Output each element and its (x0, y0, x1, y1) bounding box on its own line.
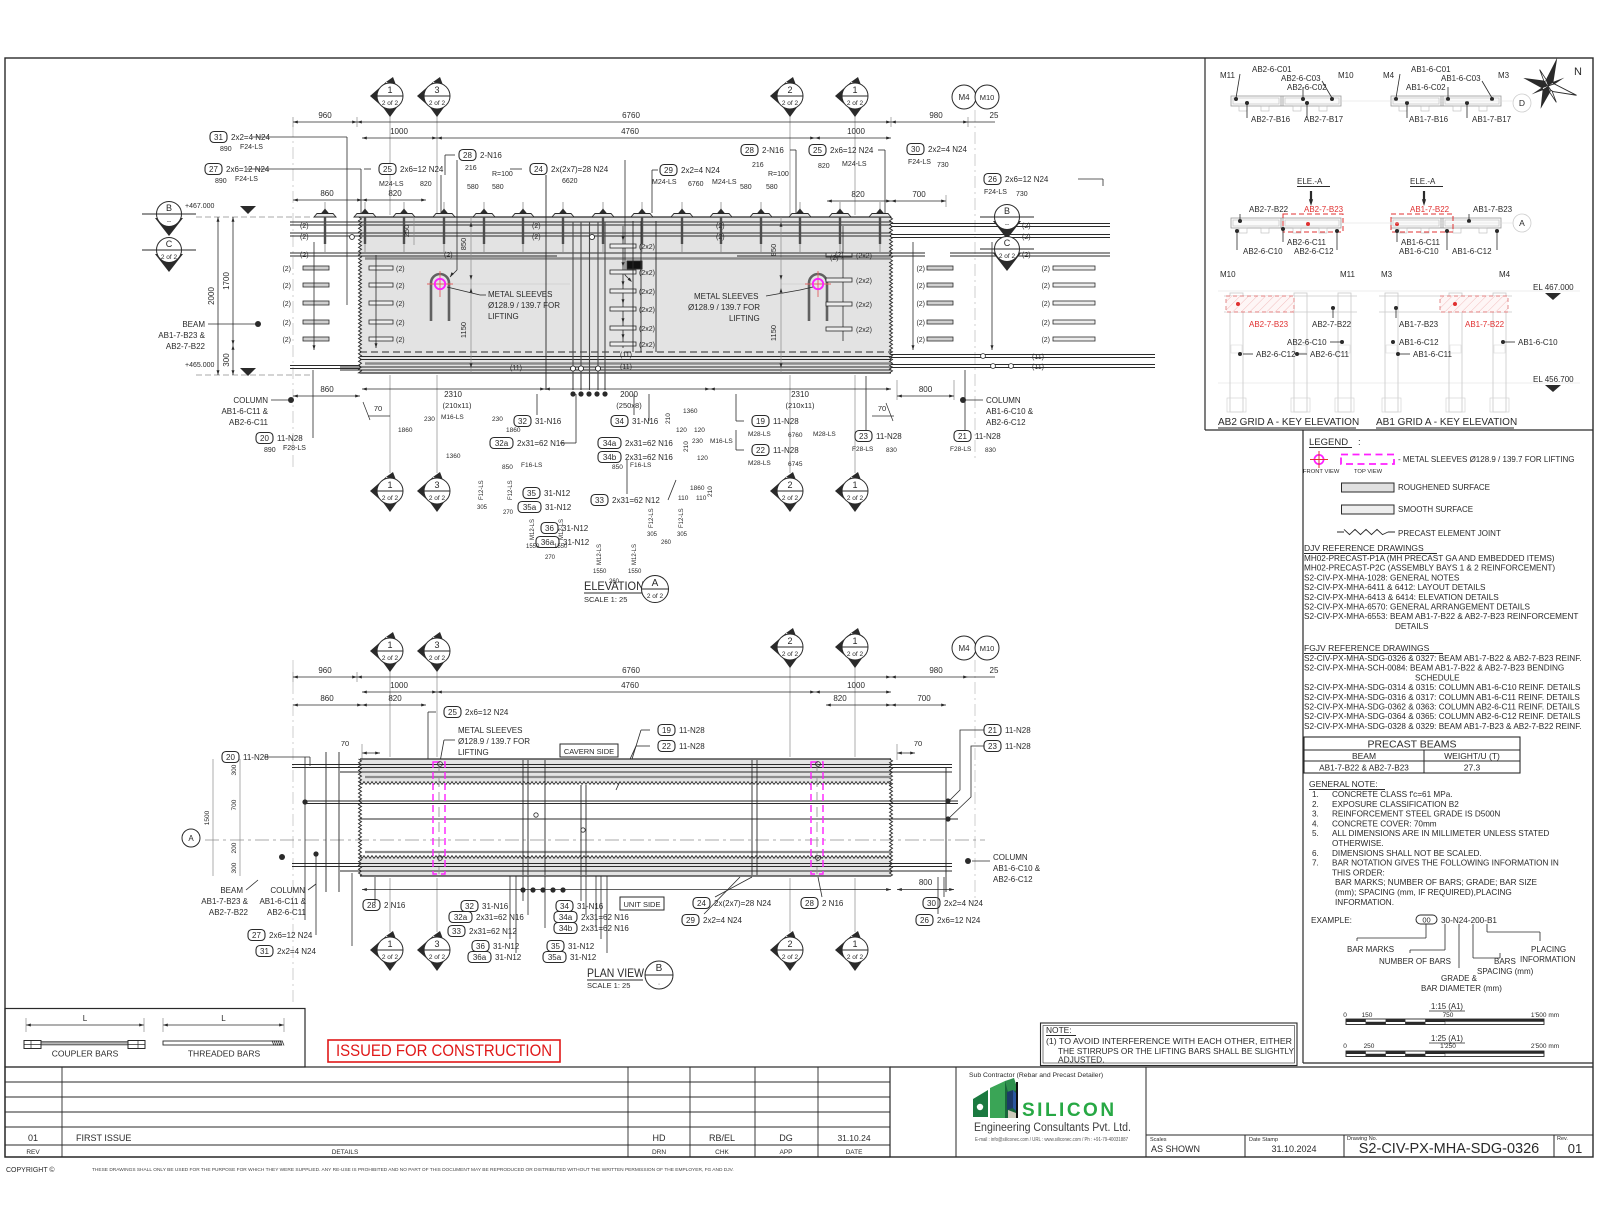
svg-text:AB2-6-C12: AB2-6-C12 (986, 418, 1026, 427)
svg-text:11-N28: 11-N28 (773, 446, 799, 455)
svg-text:PLACING: PLACING (1531, 945, 1566, 954)
svg-text:36a: 36a (541, 538, 555, 547)
svg-text:M24-LS: M24-LS (379, 181, 404, 188)
svg-text:·: · (658, 981, 660, 988)
svg-text:DETAILS: DETAILS (1395, 622, 1429, 631)
svg-text:580: 580 (467, 184, 479, 191)
svg-text:20: 20 (260, 434, 269, 443)
svg-text:230: 230 (692, 438, 703, 445)
svg-text:F28-LS: F28-LS (852, 446, 874, 453)
svg-text:BARS: BARS (1494, 957, 1516, 966)
svg-text:M12-LS: M12-LS (530, 519, 536, 540)
svg-text:2x2=4 N24: 2x2=4 N24 (231, 133, 270, 142)
svg-text:750: 750 (1443, 1012, 1454, 1019)
svg-text:1: 1 (852, 939, 857, 949)
svg-text:2 of 2: 2 of 2 (647, 593, 664, 600)
svg-text:34a: 34a (603, 439, 617, 448)
svg-text:(2): (2) (916, 301, 925, 308)
svg-text:2 of 2: 2 of 2 (382, 495, 399, 502)
svg-text:700: 700 (231, 799, 238, 810)
svg-text:2 N16: 2 N16 (384, 901, 406, 910)
svg-text:E-mail : info@siliconec.com /: E-mail : info@siliconec.com / URL : www.… (975, 1137, 1128, 1143)
svg-text:34: 34 (615, 417, 624, 426)
svg-text:21: 21 (988, 726, 997, 735)
svg-text:ROUGHENED SURFACE: ROUGHENED SURFACE (1398, 483, 1490, 492)
svg-text:F28-LS: F28-LS (950, 446, 972, 453)
svg-text:1: 1 (852, 480, 857, 490)
svg-text:UNIT SIDE: UNIT SIDE (624, 900, 661, 909)
svg-text:2 of 2: 2 of 2 (782, 100, 799, 107)
svg-text:305: 305 (647, 532, 658, 538)
svg-text:23: 23 (859, 432, 868, 441)
svg-text:B: B (166, 203, 172, 213)
svg-text:F28-LS: F28-LS (283, 445, 306, 452)
svg-text:F12-LS: F12-LS (508, 480, 514, 500)
svg-text:AB2-6-C12: AB2-6-C12 (1294, 247, 1334, 256)
svg-text:(2): (2) (1041, 320, 1050, 327)
svg-text:BEAM: BEAM (1352, 751, 1376, 761)
svg-text:2x6=12 N24: 2x6=12 N24 (269, 931, 313, 940)
svg-text:AB2-6-C11: AB2-6-C11 (267, 908, 307, 917)
svg-text:1860: 1860 (690, 485, 705, 492)
svg-text:980: 980 (929, 666, 943, 675)
svg-text:860: 860 (320, 189, 334, 198)
svg-text:1500: 1500 (204, 810, 211, 825)
svg-text:34: 34 (560, 902, 569, 911)
svg-text:5.: 5. (1312, 829, 1319, 838)
svg-text:THREADED BARS: THREADED BARS (188, 1049, 261, 1059)
svg-text:F24-LS: F24-LS (908, 159, 931, 166)
svg-text:3: 3 (434, 85, 439, 95)
svg-text:960: 960 (318, 666, 332, 675)
svg-text:6760: 6760 (622, 111, 640, 120)
svg-text:31-N12: 31-N12 (562, 524, 589, 533)
svg-text:31-N12: 31-N12 (495, 953, 522, 962)
svg-text:AB2-7-B17: AB2-7-B17 (1304, 115, 1344, 124)
svg-text:+465.000: +465.000 (185, 362, 214, 369)
svg-text:S2-CIV-PX-MHA-SDG-0326 & 0327:: S2-CIV-PX-MHA-SDG-0326 & 0327: BEAM AB1-… (1304, 654, 1582, 663)
svg-text:APP: APP (779, 1149, 792, 1156)
svg-text:SCALE 1: 25: SCALE 1: 25 (587, 981, 630, 990)
svg-text:DJV REFERENCE DRAWINGS: DJV REFERENCE DRAWINGS (1304, 543, 1424, 553)
svg-text:2: 2 (787, 939, 792, 949)
svg-text:11-N28: 11-N28 (876, 432, 902, 441)
svg-text:AB1-7-B22: AB1-7-B22 (1465, 320, 1505, 329)
svg-text:COUPLER BARS: COUPLER BARS (52, 1049, 119, 1059)
svg-text:11-N28: 11-N28 (277, 434, 303, 443)
svg-text:270: 270 (545, 555, 556, 561)
svg-text:BEAM: BEAM (182, 320, 205, 329)
svg-text:M12-LS: M12-LS (597, 544, 603, 565)
svg-text:850: 850 (769, 244, 778, 257)
svg-text:(2): (2) (282, 266, 291, 273)
svg-text:AB2-6-C11: AB2-6-C11 (1287, 238, 1327, 247)
svg-text:2x31=62 N16: 2x31=62 N16 (581, 924, 629, 933)
svg-text:INFORMATION.: INFORMATION. (1335, 898, 1394, 907)
svg-text:A: A (652, 578, 659, 589)
svg-text:(210x11): (210x11) (785, 401, 815, 410)
svg-text:S2-CIV-PX-MHA-SDG-0328 & 0329:: S2-CIV-PX-MHA-SDG-0328 & 0329: BEAM AB1-… (1304, 722, 1582, 731)
svg-text:11-N28: 11-N28 (975, 432, 1001, 441)
svg-text:Ø128.9 / 139.7 FOR: Ø128.9 / 139.7 FOR (688, 303, 760, 312)
svg-text:F12-LS: F12-LS (649, 508, 655, 528)
svg-text:S2-CIV-PX-MHA-SDG-0362 & 0363:: S2-CIV-PX-MHA-SDG-0362 & 0363: COLUMN AB… (1304, 703, 1580, 712)
svg-text:L: L (221, 1014, 226, 1023)
svg-text:COLUMN: COLUMN (993, 853, 1028, 862)
svg-text:M24-LS: M24-LS (712, 179, 737, 186)
svg-text:260: 260 (661, 540, 672, 546)
svg-text:33: 33 (595, 496, 604, 505)
svg-text:(11): (11) (1032, 364, 1044, 371)
svg-text:2 of 2: 2 of 2 (847, 100, 864, 107)
svg-text:GRADE &: GRADE & (1441, 974, 1478, 983)
svg-text:2310: 2310 (444, 390, 462, 399)
svg-text:580: 580 (740, 184, 752, 191)
svg-text:AB1-6-C02: AB1-6-C02 (1406, 83, 1446, 92)
svg-text:CHK: CHK (715, 1149, 729, 1156)
svg-text:34a: 34a (559, 913, 573, 922)
svg-text:AB2-7-B23: AB2-7-B23 (1304, 205, 1344, 214)
svg-text:ALL DIMENSIONS ARE IN MILLIMET: ALL DIMENSIONS ARE IN MILLIMETER UNLESS … (1332, 829, 1549, 838)
svg-text:31.10.24: 31.10.24 (837, 1133, 870, 1143)
svg-text:1360: 1360 (446, 453, 461, 460)
svg-text:THIS ORDER:: THIS ORDER: (1332, 868, 1385, 877)
svg-text:BAR MARKS; NUMBER OF BARS; GRA: BAR MARKS; NUMBER OF BARS; GRADE; BAR SI… (1335, 878, 1538, 887)
svg-text:25: 25 (813, 146, 822, 155)
svg-text:11-N28: 11-N28 (1005, 742, 1031, 751)
svg-text:850: 850 (612, 464, 623, 471)
svg-text:(2): (2) (916, 337, 925, 344)
svg-text:AB1-6-C12: AB1-6-C12 (1399, 338, 1439, 347)
svg-text:26: 26 (988, 175, 997, 184)
svg-text:(2): (2) (1041, 283, 1050, 290)
svg-text:--: -- (1005, 221, 1009, 228)
svg-text:305: 305 (677, 532, 688, 538)
svg-text:CAVERN SIDE: CAVERN SIDE (564, 747, 614, 756)
svg-text:M24-LS: M24-LS (652, 179, 677, 186)
svg-text:M3: M3 (1381, 270, 1393, 279)
svg-text:120: 120 (697, 455, 708, 462)
svg-text:M4: M4 (958, 93, 970, 102)
svg-text:S2-CIV-PX-MHA-6411 & 6412: LAY: S2-CIV-PX-MHA-6411 & 6412: LAYOUT DETAIL… (1304, 583, 1486, 592)
svg-text:27: 27 (252, 931, 261, 940)
svg-text:DG: DG (779, 1133, 793, 1143)
svg-text:19: 19 (756, 417, 765, 426)
svg-text:Date Stamp: Date Stamp (1249, 1137, 1278, 1143)
svg-text:AB2-7-B22: AB2-7-B22 (1312, 320, 1352, 329)
svg-text:(2): (2) (282, 301, 291, 308)
svg-text:AB1-6-C11 &: AB1-6-C11 & (259, 897, 306, 906)
svg-text:(2): (2) (1041, 301, 1050, 308)
svg-text:28: 28 (745, 146, 754, 155)
svg-text:AB2-6-C12: AB2-6-C12 (1256, 350, 1296, 359)
svg-text:1550: 1550 (526, 544, 540, 550)
svg-text:2x6=12 N24: 2x6=12 N24 (400, 165, 444, 174)
svg-text:M4: M4 (1383, 71, 1395, 80)
svg-text:M10: M10 (1220, 270, 1236, 279)
svg-text:3: 3 (434, 640, 439, 650)
svg-text:960: 960 (318, 111, 332, 120)
svg-text:REINFORCEMENT STEEL GRADE IS D: REINFORCEMENT STEEL GRADE IS D500N (1332, 810, 1500, 819)
svg-text:210: 210 (707, 486, 714, 497)
svg-text:2 of 2: 2 of 2 (161, 254, 178, 261)
svg-text:28: 28 (805, 899, 814, 908)
svg-text:2x31=62 N16: 2x31=62 N16 (476, 913, 524, 922)
svg-text:580: 580 (492, 184, 504, 191)
svg-text:31-N16: 31-N16 (632, 417, 659, 426)
svg-text:M28-LS: M28-LS (813, 431, 836, 438)
svg-text:27.3: 27.3 (1464, 763, 1481, 773)
svg-text:AB1-7-B22 & AB2-7-B23: AB1-7-B22 & AB2-7-B23 (1319, 764, 1409, 773)
svg-text:11-N28: 11-N28 (679, 726, 705, 735)
svg-text:GENERAL NOTE:: GENERAL NOTE: (1309, 779, 1378, 789)
svg-text:ISSUED FOR CONSTRUCTION: ISSUED FOR CONSTRUCTION (336, 1042, 552, 1060)
svg-text:REV: REV (26, 1149, 40, 1156)
svg-text:NUMBER OF BARS: NUMBER OF BARS (1379, 957, 1451, 966)
svg-text:ELE.-A: ELE.-A (1297, 177, 1323, 186)
svg-text:35a: 35a (523, 503, 537, 512)
svg-text:2x2=4 N24: 2x2=4 N24 (681, 166, 720, 175)
svg-text:36: 36 (545, 524, 554, 533)
svg-text:820: 820 (833, 694, 847, 703)
svg-text:24: 24 (534, 165, 543, 174)
svg-text:700: 700 (917, 694, 931, 703)
svg-text:150: 150 (1362, 1012, 1373, 1019)
svg-text:4760: 4760 (621, 681, 639, 690)
svg-text:33: 33 (452, 927, 461, 936)
svg-text:850: 850 (502, 464, 513, 471)
svg-text:28: 28 (463, 151, 472, 160)
svg-text:216: 216 (465, 165, 477, 172)
svg-text:730: 730 (937, 162, 949, 169)
svg-text::: : (1358, 437, 1361, 448)
svg-text:32: 32 (518, 417, 527, 426)
svg-text:FRONT VIEW: FRONT VIEW (1303, 469, 1340, 475)
svg-text:01: 01 (28, 1133, 38, 1143)
svg-text:METAL SLEEVES: METAL SLEEVES (488, 290, 552, 299)
svg-text:2 N16: 2 N16 (822, 899, 844, 908)
svg-text:1150: 1150 (459, 322, 468, 338)
svg-text:6745: 6745 (788, 461, 803, 468)
svg-text:F24-LS: F24-LS (235, 176, 258, 183)
svg-text:31-N12: 31-N12 (545, 503, 572, 512)
svg-text:NOTE:: NOTE: (1046, 1025, 1072, 1035)
svg-text:1860: 1860 (398, 427, 413, 434)
svg-text:SMOOTH SURFACE: SMOOTH SURFACE (1398, 505, 1473, 514)
svg-text:AB2-6-C03: AB2-6-C03 (1281, 74, 1321, 83)
svg-text:M10: M10 (980, 93, 995, 102)
svg-text:2000: 2000 (207, 287, 216, 305)
svg-text:PRECAST ELEMENT JOINT: PRECAST ELEMENT JOINT (1398, 529, 1501, 538)
svg-text:2x31=62 N16: 2x31=62 N16 (625, 453, 673, 462)
svg-text:4760: 4760 (621, 127, 639, 136)
svg-text:LEGEND: LEGEND (1309, 437, 1348, 448)
svg-text:+467.000: +467.000 (185, 203, 214, 210)
svg-text:200: 200 (231, 842, 238, 853)
svg-text:26: 26 (920, 916, 929, 925)
svg-text:(2): (2) (835, 252, 844, 259)
svg-text:F16-LS: F16-LS (521, 462, 543, 469)
svg-text:23: 23 (988, 742, 997, 751)
svg-text:AB1-6-C11: AB1-6-C11 (1401, 238, 1441, 247)
svg-text:2: 2 (787, 480, 792, 490)
svg-text:21: 21 (958, 432, 967, 441)
svg-text:11-N28: 11-N28 (243, 753, 269, 762)
svg-text:0: 0 (1343, 1012, 1347, 1019)
svg-text:2 of 2: 2 of 2 (382, 655, 399, 662)
svg-text:2310: 2310 (791, 390, 809, 399)
svg-text:32: 32 (465, 902, 474, 911)
svg-text:2: 2 (787, 85, 792, 95)
svg-text:(11): (11) (620, 352, 632, 359)
svg-text:DATE: DATE (846, 1149, 864, 1156)
svg-text:M28-LS: M28-LS (748, 460, 771, 467)
svg-text:S2-CIV-PX-MHA-SDG-0326: S2-CIV-PX-MHA-SDG-0326 (1359, 1141, 1540, 1157)
svg-text:11-N28: 11-N28 (773, 417, 799, 426)
svg-text:AB1-6-C11: AB1-6-C11 (1413, 350, 1453, 359)
svg-text:M10: M10 (1338, 71, 1354, 80)
svg-text:2000: 2000 (620, 390, 638, 399)
svg-text:(2x2): (2x2) (856, 278, 872, 285)
svg-text:70: 70 (374, 404, 382, 413)
svg-text:M12-LS: M12-LS (632, 544, 638, 565)
svg-text:Ø128.9 / 139.7 FOR: Ø128.9 / 139.7 FOR (458, 737, 530, 746)
svg-text:F12-LS: F12-LS (679, 508, 685, 528)
svg-text:6760: 6760 (622, 666, 640, 675)
svg-text:1550: 1550 (554, 544, 568, 550)
svg-text:2 of 2: 2 of 2 (382, 954, 399, 961)
svg-text:R=100: R=100 (768, 171, 789, 178)
svg-text:FIRST ISSUE: FIRST ISSUE (76, 1133, 131, 1143)
svg-text:120: 120 (694, 427, 705, 434)
svg-text:1: 1 (852, 636, 857, 646)
svg-text:230: 230 (424, 416, 435, 423)
svg-text:820: 820 (818, 163, 830, 170)
svg-text:AB2-6-C11: AB2-6-C11 (229, 418, 269, 427)
svg-text:AB2-6-C01: AB2-6-C01 (1252, 65, 1292, 74)
svg-text:2.: 2. (1312, 800, 1319, 809)
svg-text:AB1-7-B23: AB1-7-B23 (1399, 320, 1439, 329)
svg-text:AB2-7-B22: AB2-7-B22 (1249, 205, 1289, 214)
svg-text:2x31=62 N16: 2x31=62 N16 (625, 439, 673, 448)
svg-text:580: 580 (766, 184, 778, 191)
svg-text:30: 30 (927, 899, 936, 908)
svg-text:2x6=12 N24: 2x6=12 N24 (1005, 175, 1049, 184)
svg-text:(2): (2) (396, 337, 405, 344)
svg-text:250: 250 (402, 225, 411, 238)
svg-text:(11): (11) (620, 364, 632, 371)
svg-text:M16-LS: M16-LS (441, 414, 464, 421)
svg-text:(210x11): (210x11) (442, 401, 472, 410)
svg-text:SILICON: SILICON (1022, 1100, 1117, 1121)
svg-text:800: 800 (919, 385, 933, 394)
svg-text:2-N16: 2-N16 (480, 151, 502, 160)
svg-text:25: 25 (990, 666, 999, 675)
svg-text:M28-LS: M28-LS (748, 431, 771, 438)
svg-text:2x(2x7)=28 N24: 2x(2x7)=28 N24 (714, 899, 772, 908)
svg-text:31-N12: 31-N12 (570, 953, 597, 962)
svg-text:6760: 6760 (788, 432, 803, 439)
svg-text:1:15 (A1): 1:15 (A1) (1431, 1002, 1463, 1011)
svg-text:2 of 2: 2 of 2 (847, 495, 864, 502)
svg-text:(2): (2) (916, 320, 925, 327)
svg-text:820: 820 (388, 694, 402, 703)
svg-text:F24-LS: F24-LS (984, 189, 1007, 196)
svg-text:20: 20 (226, 753, 235, 762)
svg-text:S2-CIV-PX-MHA-6413 & 6414: ELE: S2-CIV-PX-MHA-6413 & 6414: ELEVATION DET… (1304, 593, 1499, 602)
svg-text:1000: 1000 (390, 127, 408, 136)
svg-text:AB2-6-C10: AB2-6-C10 (1243, 247, 1283, 256)
svg-text:2 of 2: 2 of 2 (782, 495, 799, 502)
svg-text:31-N16: 31-N16 (577, 902, 604, 911)
svg-text:CONCRETE CLASS f'c=61 MPa.: CONCRETE CLASS f'c=61 MPa. (1332, 790, 1453, 799)
svg-text:(1) TO AVOID INTERFERENCE WITH: (1) TO AVOID INTERFERENCE WITH EACH OTHE… (1046, 1036, 1292, 1046)
svg-text:BEAM: BEAM (220, 886, 243, 895)
svg-text:11-N28: 11-N28 (1005, 726, 1031, 735)
svg-text:270: 270 (503, 510, 514, 516)
svg-text:(2x2): (2x2) (856, 302, 872, 309)
svg-text:6760: 6760 (688, 181, 704, 188)
svg-text:2x6=12 N24: 2x6=12 N24 (465, 708, 509, 717)
svg-text:2x2=4 N24: 2x2=4 N24 (944, 899, 983, 908)
svg-text:AB2-7-B22: AB2-7-B22 (209, 908, 249, 917)
svg-text:(2): (2) (1041, 266, 1050, 273)
svg-text:890: 890 (220, 146, 232, 153)
svg-text:1550: 1550 (593, 569, 607, 575)
svg-text:(2): (2) (282, 283, 291, 290)
svg-text:2 of 2: 2 of 2 (999, 253, 1016, 260)
svg-text:AB1-7-B23: AB1-7-B23 (1473, 205, 1513, 214)
svg-text:RB/EL: RB/EL (709, 1133, 735, 1143)
svg-text:(2): (2) (396, 301, 405, 308)
svg-text:(2): (2) (396, 266, 405, 273)
svg-text:AB1-6-C03: AB1-6-C03 (1441, 74, 1481, 83)
svg-text:2 of 2: 2 of 2 (382, 100, 399, 107)
svg-text:AB1-7-B23 &: AB1-7-B23 & (201, 897, 248, 906)
svg-text:AB2-6-C12: AB2-6-C12 (993, 875, 1033, 884)
svg-text:EXAMPLE:: EXAMPLE: (1311, 916, 1352, 925)
svg-text:2x2=4 N24: 2x2=4 N24 (703, 916, 742, 925)
svg-text:36a: 36a (473, 953, 487, 962)
svg-text:AS SHOWN: AS SHOWN (1151, 1144, 1200, 1154)
svg-text:(2): (2) (1022, 234, 1031, 241)
svg-text:6620: 6620 (562, 178, 578, 185)
svg-text:2x6=12 N24: 2x6=12 N24 (937, 916, 981, 925)
svg-text:(2): (2) (300, 234, 309, 241)
svg-text:F16-LS: F16-LS (630, 462, 652, 469)
svg-text:BAR DIAMETER (mm): BAR DIAMETER (mm) (1421, 984, 1502, 993)
svg-text:980: 980 (929, 111, 943, 120)
svg-text:3: 3 (434, 939, 439, 949)
svg-text:7.: 7. (1312, 859, 1319, 868)
svg-text:70: 70 (341, 739, 349, 748)
svg-text:COPYRIGHT ©: COPYRIGHT © (6, 1166, 55, 1174)
svg-text:A: A (1519, 218, 1525, 228)
svg-text:INFORMATION: INFORMATION (1520, 955, 1576, 964)
svg-text:D: D (1519, 98, 1525, 108)
svg-text:AB1-6-C10: AB1-6-C10 (1518, 338, 1558, 347)
svg-text:A: A (188, 834, 194, 843)
svg-text:(2x2): (2x2) (856, 253, 872, 260)
svg-text:BAR NOTATION GIVES THE FOLLOWI: BAR NOTATION GIVES THE FOLLOWING INFORMA… (1332, 859, 1559, 868)
svg-text:3.: 3. (1312, 810, 1319, 819)
svg-text:COLUMN: COLUMN (986, 396, 1021, 405)
svg-text:31: 31 (260, 947, 269, 956)
svg-text:MH02-PRECAST-P2C (ASSEMBLY BAY: MH02-PRECAST-P2C (ASSEMBLY BAYS 1 & 2 RE… (1304, 564, 1555, 573)
svg-text:32a: 32a (495, 439, 509, 448)
svg-text:31.10.2024: 31.10.2024 (1271, 1144, 1316, 1154)
svg-text:LIFTING: LIFTING (488, 312, 519, 321)
